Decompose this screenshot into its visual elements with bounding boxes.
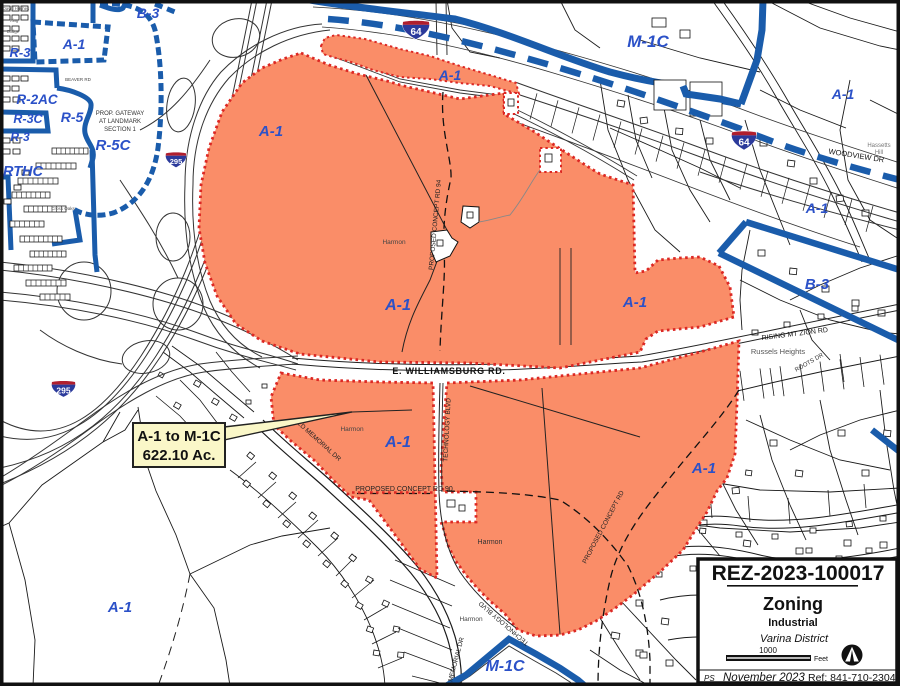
svg-text:64: 64 — [410, 27, 422, 38]
svg-text:Harmon: Harmon — [459, 616, 483, 623]
svg-text:Ref: 841-710-2304: Ref: 841-710-2304 — [808, 672, 896, 684]
svg-text:A-1: A-1 — [438, 67, 462, 83]
svg-text:R-5: R-5 — [61, 109, 84, 125]
svg-text:A-1: A-1 — [384, 297, 411, 314]
svg-text:SECTION 1: SECTION 1 — [104, 127, 136, 133]
svg-text:A-1 to M-1C: A-1 to M-1C — [137, 428, 220, 445]
svg-text:Cross Oaks: Cross Oaks — [51, 206, 75, 211]
svg-text:B-3: B-3 — [137, 5, 160, 21]
svg-text:A-1: A-1 — [805, 200, 829, 216]
svg-text:64: 64 — [738, 138, 750, 149]
svg-text:November 2023: November 2023 — [723, 672, 805, 684]
svg-text:Varina District: Varina District — [760, 633, 829, 645]
svg-text:A-1: A-1 — [691, 460, 716, 477]
svg-text:A-1: A-1 — [62, 36, 86, 52]
svg-text:PROP. GATEWAY: PROP. GATEWAY — [96, 111, 144, 117]
svg-text:A-1: A-1 — [831, 86, 855, 102]
svg-text:Harmon: Harmon — [340, 426, 364, 433]
svg-text:295: 295 — [56, 385, 70, 395]
svg-text:PROPOSED CONCEPT RD 90: PROPOSED CONCEPT RD 90 — [355, 486, 453, 493]
svg-text:Harmon: Harmon — [478, 539, 503, 546]
svg-text:295: 295 — [170, 157, 183, 166]
svg-text:Industrial: Industrial — [768, 617, 818, 629]
svg-text:Ring: Ring — [10, 18, 19, 23]
svg-text:Zoning: Zoning — [763, 594, 823, 614]
svg-text:BEAVER RD: BEAVER RD — [65, 77, 91, 82]
svg-text:Hill: Hill — [875, 150, 883, 156]
svg-text:R-5C: R-5C — [95, 137, 131, 154]
svg-text:M-1C: M-1C — [485, 658, 525, 675]
svg-text:PS: PS — [704, 674, 715, 683]
svg-text:Russels Heights: Russels Heights — [751, 347, 805, 356]
svg-text:RTHC: RTHC — [3, 164, 44, 180]
svg-text:R-3: R-3 — [10, 45, 32, 60]
svg-text:A-1: A-1 — [107, 599, 132, 616]
svg-text:David Hughes: David Hughes — [3, 6, 29, 11]
svg-text:Harmon: Harmon — [382, 239, 406, 246]
svg-text:A-1: A-1 — [622, 294, 647, 311]
svg-text:M-1C: M-1C — [627, 32, 669, 51]
svg-text:Feet: Feet — [814, 656, 828, 663]
svg-text:E. WILLIAMSBURG RD.: E. WILLIAMSBURG RD. — [392, 366, 505, 376]
svg-text:A-1: A-1 — [258, 123, 283, 140]
svg-text:REZ-2023-100017: REZ-2023-100017 — [712, 562, 885, 585]
svg-text:A-1: A-1 — [384, 434, 411, 451]
svg-text:Hassetts: Hassetts — [867, 143, 890, 149]
svg-text:R-3C: R-3C — [13, 112, 43, 126]
svg-text:1000: 1000 — [759, 646, 777, 655]
svg-text:AT LANDMARK: AT LANDMARK — [99, 119, 141, 125]
svg-text:B-3: B-3 — [805, 276, 830, 293]
svg-text:Bridge: Bridge — [7, 29, 20, 34]
svg-text:R-3: R-3 — [10, 130, 30, 144]
svg-text:622.10 Ac.: 622.10 Ac. — [143, 447, 216, 464]
svg-text:R-2AC: R-2AC — [16, 92, 58, 107]
